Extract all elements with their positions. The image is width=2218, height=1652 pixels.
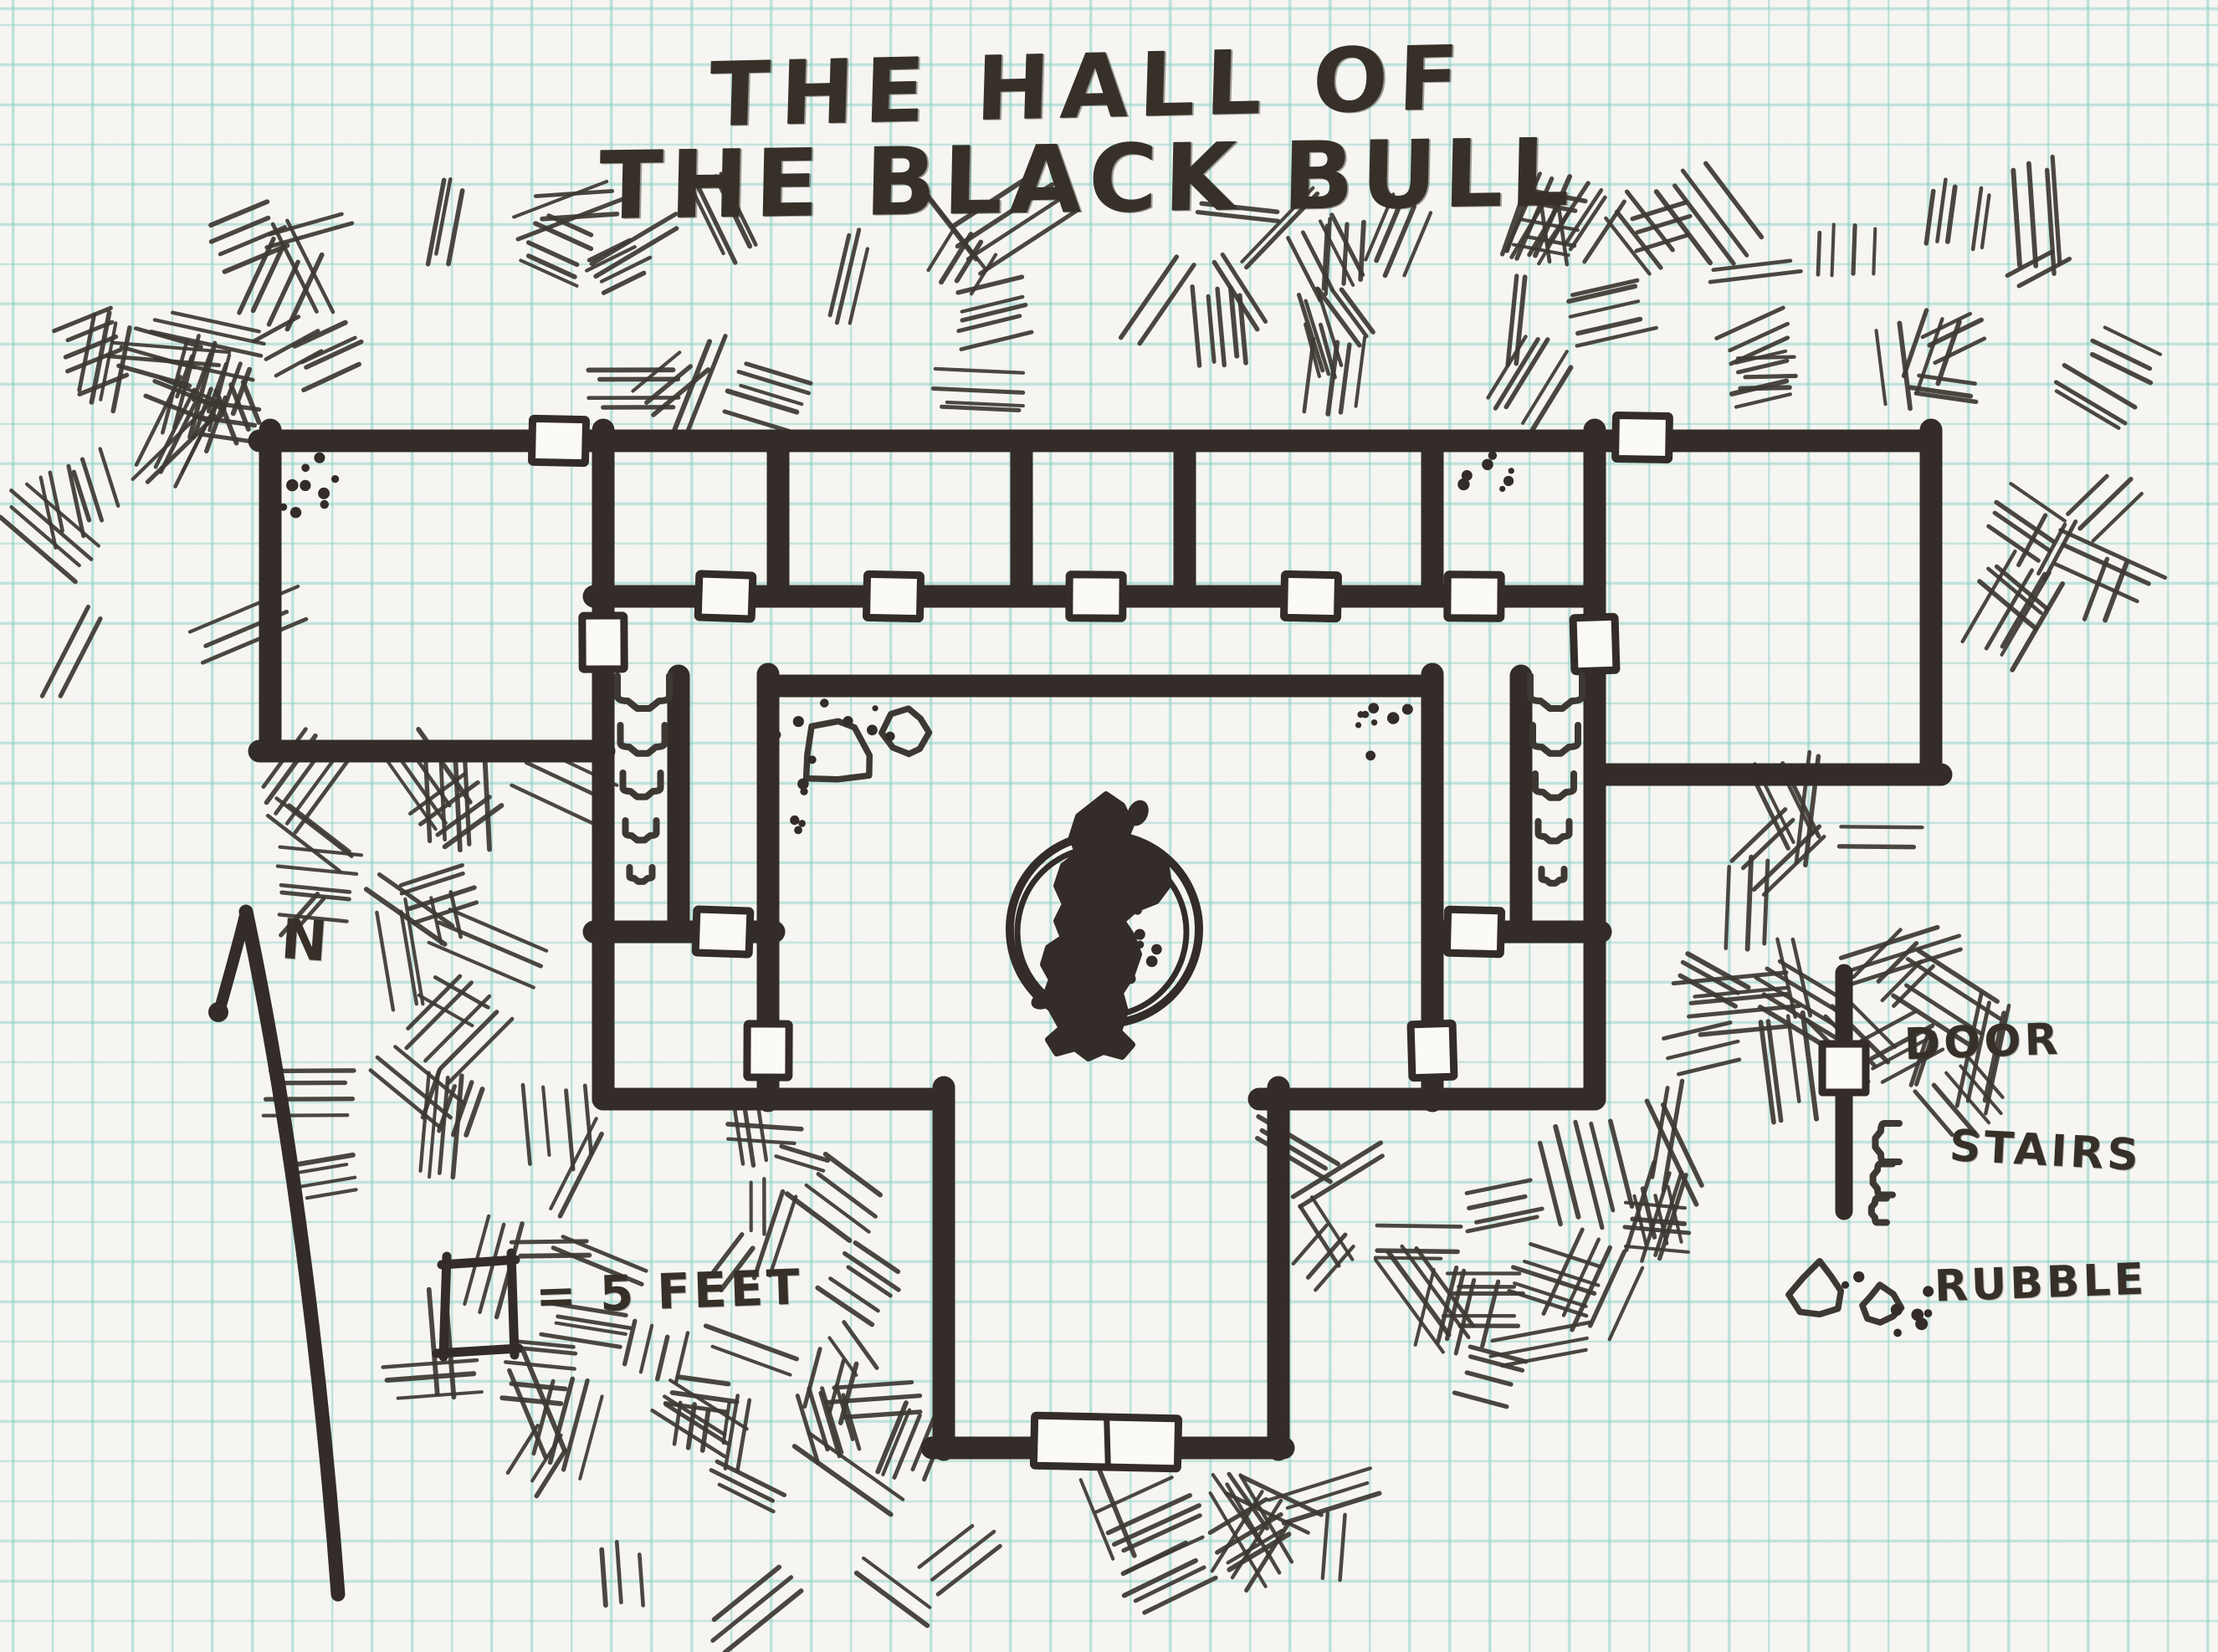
door-icon (1447, 575, 1501, 619)
legend-stairs-label: STAIRS (1949, 1121, 2144, 1181)
rubble-dot (1853, 1271, 1864, 1282)
door-icon (866, 574, 920, 618)
rubble-dot (290, 507, 301, 518)
door-icon (1616, 415, 1670, 459)
rubble-dot (320, 500, 330, 509)
door-icon (1822, 1044, 1866, 1092)
rubble-rock-icon (1789, 1261, 1841, 1315)
legend-rubble-label: RUBBLE (1934, 1255, 2148, 1312)
rubble-rock-icon (882, 708, 930, 754)
rubble-dot (300, 480, 310, 491)
door-icon (531, 418, 586, 463)
rubble-dot (794, 826, 802, 835)
bull-statue (1043, 795, 1169, 1058)
stairs-icon (1873, 1164, 1893, 1195)
legend-door-label: DOOR (1903, 1015, 2062, 1071)
door-icon (698, 574, 753, 619)
rubble-dot (798, 820, 806, 827)
rubble-dot (1387, 712, 1400, 724)
rubble-dot (770, 719, 776, 725)
rubble-dot (279, 504, 287, 511)
rubble-dot (1842, 1281, 1849, 1289)
rubble-dot (808, 755, 817, 764)
door-icon (1069, 575, 1123, 619)
rubble-dot (1371, 719, 1377, 725)
stairs-icon (1872, 1199, 1887, 1223)
rubble-dot (790, 816, 799, 825)
rubble-rock-icon (1862, 1285, 1902, 1322)
door-icon (695, 909, 750, 954)
door-icon (1411, 1023, 1454, 1077)
rubble-dot (793, 716, 804, 727)
rubble-dot (1915, 1317, 1928, 1330)
door-icon (1447, 909, 1501, 954)
dungeon-map-page: THE HALL OF THE BLACK BULL N = 5 FEET DO… (0, 0, 2218, 1652)
map-title-line2: THE BLACK BULL (598, 119, 1578, 241)
rubble-dot (771, 730, 781, 739)
stairs-icon (623, 773, 661, 797)
north-label: N (279, 907, 332, 974)
rubble-rock-icon (807, 721, 870, 779)
stairs-icon (630, 867, 653, 882)
rubble-dot (286, 479, 298, 491)
stairs-icon (1533, 725, 1578, 754)
rubble-dot (301, 463, 310, 472)
rubble-dot (1499, 486, 1505, 492)
rubble-dot (820, 698, 829, 708)
rubble-dot (1365, 750, 1375, 760)
rubble-dot (1482, 459, 1493, 471)
rubble-dot (314, 453, 325, 463)
rubble-dot (843, 716, 853, 726)
rubble-dot (1923, 1286, 1934, 1297)
rubble-dot (1893, 1329, 1902, 1337)
stairs-icon (1535, 774, 1574, 798)
stairs-icon (626, 821, 657, 840)
stairs-icon (1542, 869, 1565, 883)
legend-door-symbol (1822, 973, 1866, 1211)
scale-label: = 5 FEET (535, 1258, 804, 1324)
door-icon (582, 616, 624, 669)
rubble-dot (1924, 1309, 1933, 1317)
rubble-dot (797, 778, 809, 790)
rubble-dot (1402, 703, 1413, 714)
bull-statue-dais (1010, 795, 1199, 1058)
rubble-dot (1361, 711, 1369, 719)
door-icon (1573, 616, 1616, 672)
stairs-icon (1875, 1123, 1899, 1162)
stairs-icon (617, 676, 669, 708)
rubble-dot (867, 724, 878, 735)
door-icon (1283, 574, 1338, 618)
stairs-icon (621, 725, 665, 754)
rubble-dot (318, 488, 330, 499)
rubble-dot (1503, 476, 1514, 486)
rubble-dot (1891, 1304, 1903, 1316)
rubble-dot (1488, 451, 1498, 460)
door-icon (747, 1024, 789, 1077)
rubble-dot (872, 705, 878, 711)
north-arrow (208, 912, 338, 1594)
rubble-dot (331, 475, 339, 483)
rubble-dot (885, 732, 894, 741)
rubble-dot (1368, 703, 1379, 713)
rubble-dot (1509, 468, 1514, 473)
stairs-icon (1530, 676, 1582, 708)
map-drawing (0, 0, 2218, 1652)
stairs-icon (1539, 821, 1570, 841)
rubble-dot (1355, 722, 1361, 728)
rubble-dot (1462, 470, 1473, 481)
door-icon (1033, 1415, 1178, 1469)
